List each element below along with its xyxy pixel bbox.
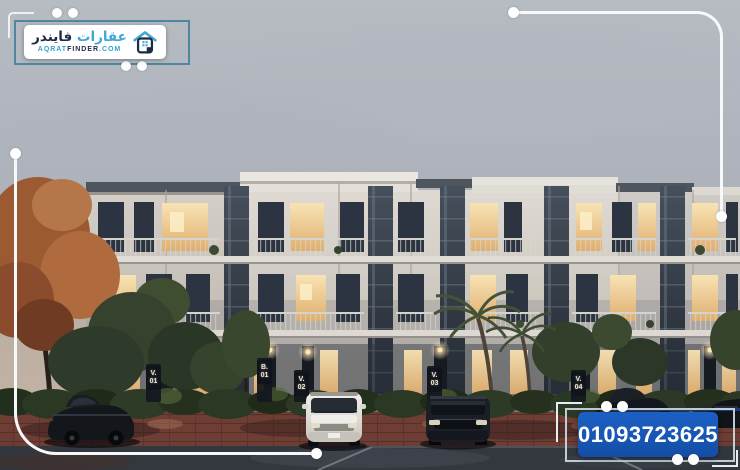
decor-line-left [14, 155, 317, 455]
decor-dot [508, 7, 519, 18]
logo-domain-part2: FINDER [67, 46, 99, 53]
unit-sign-v03: V. 03 [427, 368, 442, 392]
phone-number: 01093723625 [578, 422, 718, 448]
unit-sign-line: 03 [427, 380, 442, 388]
house-icon [132, 29, 158, 55]
unit-sign-line: V. [571, 376, 586, 384]
logo-domain: AQRATFINDER.COM [38, 46, 121, 53]
decor-dot [137, 61, 147, 71]
dark-suv [420, 396, 496, 450]
decor-dot [311, 448, 322, 459]
real-estate-ad-image: V. 01 B. 01 V. 02 V. 03 V. 04 [0, 0, 740, 470]
decor-dot [601, 401, 612, 412]
decor-dot [617, 401, 628, 412]
decor-dot [52, 8, 62, 18]
logo-domain-part1: AQRAT [38, 46, 67, 53]
logo-text-block: عقارات فايندر AQRATFINDER.COM [32, 31, 127, 54]
decor-dot [716, 211, 727, 222]
decor-dot [121, 61, 131, 71]
logo-arabic-word1: عقارات [77, 29, 127, 45]
decor-dot [688, 454, 699, 465]
unit-sign-line: 04 [571, 384, 586, 392]
brand-logo: عقارات فايندر AQRATFINDER.COM [24, 25, 166, 59]
unit-sign-v04: V. 04 [571, 372, 586, 396]
logo-domain-tld: .COM [99, 46, 121, 53]
decor-dot [10, 148, 21, 159]
logo-arabic-name: عقارات فايندر [32, 31, 127, 45]
decor-dot [672, 454, 683, 465]
unit-sign-line: V. [427, 372, 442, 380]
phone-number-plate: 01093723625 [578, 412, 718, 457]
logo-arabic-word2: فايندر [32, 29, 72, 45]
decor-dot [68, 8, 78, 18]
decor-line-top-right [516, 11, 723, 215]
